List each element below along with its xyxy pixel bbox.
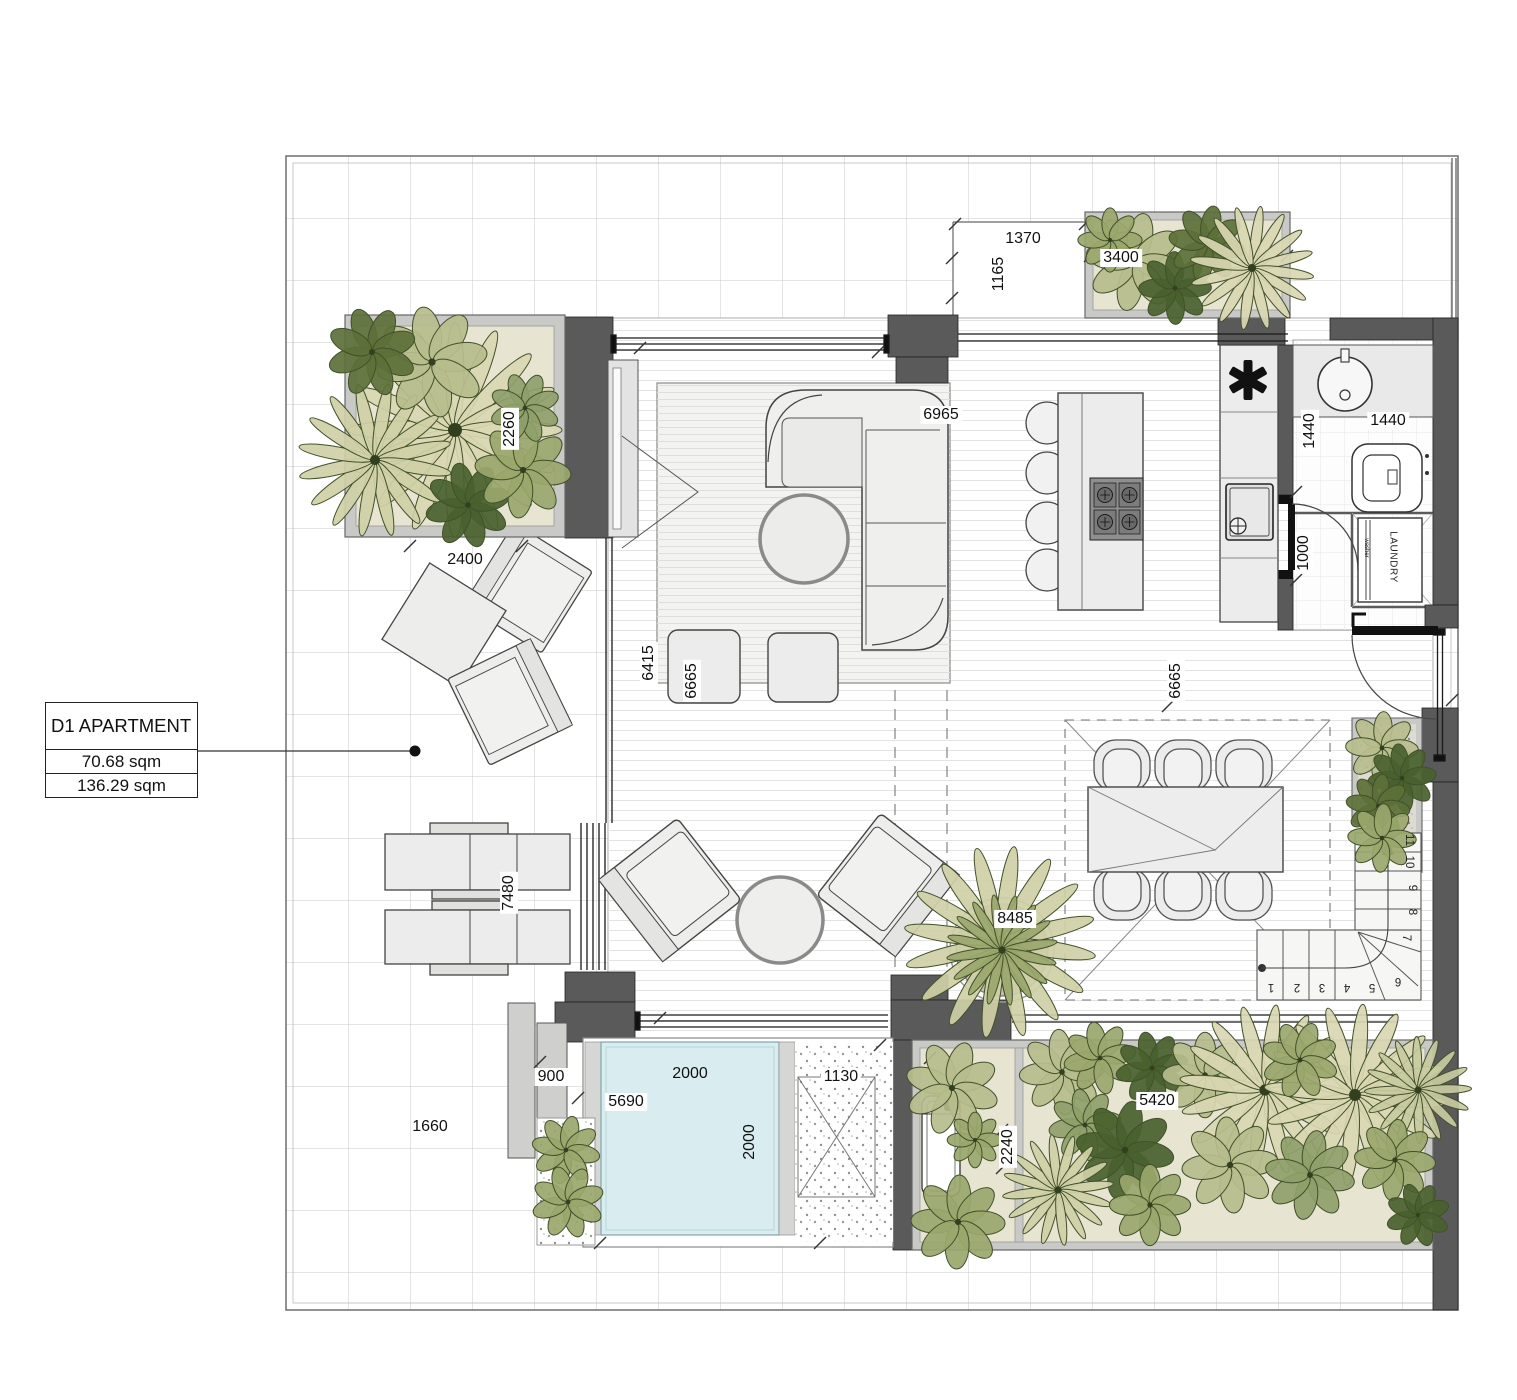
dim-pool-width: 2000 (669, 1065, 711, 1083)
title-box: D1 APARTMENT 70.68 sqm 136.29 sqm (45, 702, 198, 798)
stair-step-label: 6 (1395, 974, 1401, 986)
kitchen-sink (1226, 484, 1273, 540)
dim-top-recess-width: 1370 (1002, 230, 1044, 248)
stair-step-label: 11 (1402, 834, 1414, 846)
dim-living-width: 6965 (920, 406, 962, 424)
floor-plan: D1 APARTMENT 70.68 sqm 136.29 sqm 1370 1… (0, 0, 1517, 1400)
pool-coping-right (779, 1042, 795, 1235)
coffee-table (760, 495, 848, 583)
dim-bath-width: 1440 (1367, 412, 1409, 430)
dim-living-depth: 6415 (640, 642, 658, 684)
side-table (737, 877, 823, 963)
laundry-label: LAUNDRY (1388, 531, 1399, 583)
dining-table (1088, 787, 1283, 872)
stair-step-label: 8 (1405, 909, 1417, 915)
apartment-title: D1 APARTMENT (45, 702, 198, 750)
dim-plant-pot: 8485 (994, 910, 1036, 928)
dim-bench: 900 (535, 1068, 568, 1086)
dim-top-planter: 3400 (1100, 249, 1142, 267)
stair-step-label: 1 (1268, 980, 1274, 992)
dim-terrace-seating: 2400 (444, 551, 486, 569)
washer-label: washer (1363, 538, 1369, 557)
toilet (1352, 444, 1429, 512)
stair-step-label: 4 (1344, 980, 1350, 992)
stair-step-label: 7 (1399, 935, 1411, 941)
floor-plan-drawing (0, 0, 1517, 1400)
dim-bath-depth: 1440 (1301, 410, 1319, 452)
dim-gravel-bed: 1130 (821, 1068, 861, 1086)
stove (1090, 478, 1143, 540)
dim-pool-terrace: 5690 (605, 1093, 647, 1111)
dim-left-planter: 2260 (501, 408, 519, 450)
dim-hall-width: 1000 (1295, 532, 1313, 574)
dim-rug-depth: 6665 (683, 660, 701, 702)
dim-right-planter-depth: 2240 (999, 1126, 1017, 1168)
area-internal: 70.68 sqm (45, 750, 198, 774)
dim-outdoor-table: 7480 (500, 872, 518, 914)
dim-top-recess-depth: 1165 (990, 254, 1008, 294)
dim-terrace-left: 1660 (409, 1118, 451, 1136)
dining-set (1088, 740, 1283, 920)
stair-step-label: 10 (1402, 856, 1414, 869)
stair-step-label: 5 (1369, 980, 1375, 992)
stair-step-label: 3 (1319, 980, 1325, 992)
stair-step-label: 2 (1294, 980, 1300, 992)
dim-dining-depth: 6665 (1167, 660, 1185, 702)
stair-step-label: 9 (1405, 885, 1417, 891)
dim-pool-length: 2000 (741, 1121, 759, 1163)
dim-right-planter: 5420 (1136, 1092, 1178, 1110)
area-total: 136.29 sqm (45, 774, 198, 798)
